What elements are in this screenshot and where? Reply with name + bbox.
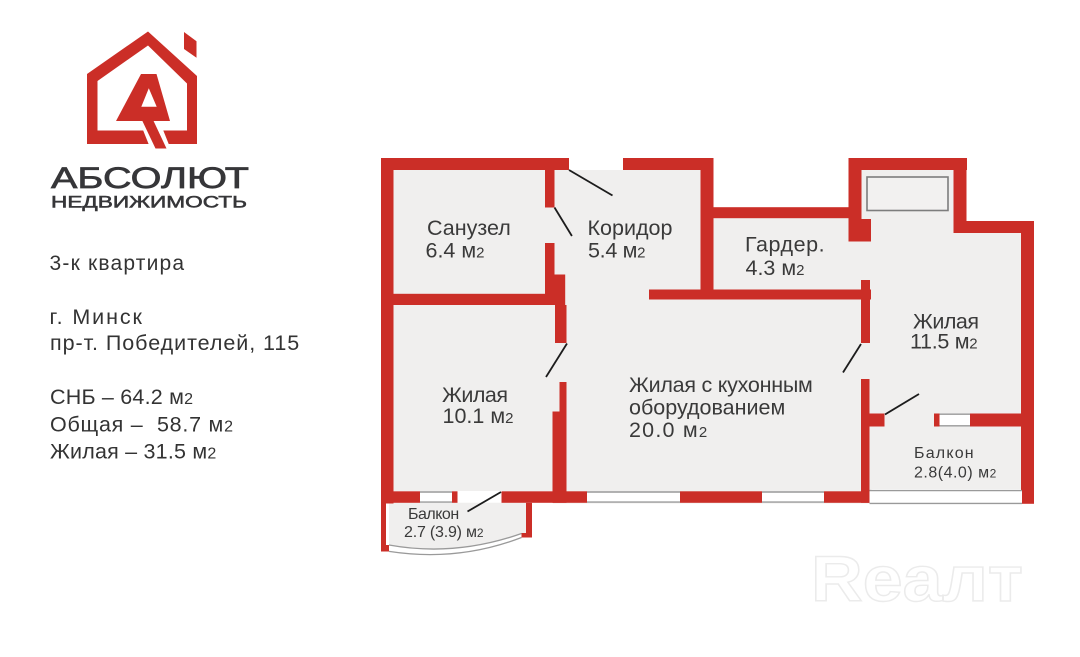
svg-text:СНБ – 64.2 м2: СНБ – 64.2 м2 (50, 385, 193, 409)
svg-text:6.4 м2: 6.4 м2 (426, 239, 485, 263)
svg-text:Коридор: Коридор (588, 216, 673, 240)
svg-text:пр-т. Победителей, 115: пр-т. Победителей, 115 (50, 331, 300, 355)
svg-text:3-к квартира: 3-к квартира (50, 252, 186, 275)
svg-text:Санузел: Санузел (427, 216, 511, 240)
svg-text:г. Минск: г. Минск (50, 305, 144, 329)
svg-text:20.0 м2: 20.0 м2 (629, 418, 708, 442)
svg-text:2.7 (3.9) м2: 2.7 (3.9) м2 (404, 524, 484, 541)
svg-text:11.5 м2: 11.5 м2 (910, 330, 977, 354)
svg-text:АБСОЛЮТ: АБСОЛЮТ (51, 162, 249, 195)
svg-text:оборудованием: оборудованием (629, 396, 785, 420)
svg-text:2.8(4.0) м2: 2.8(4.0) м2 (914, 465, 997, 482)
svg-text:НЕДВИЖИМОСТЬ: НЕДВИЖИМОСТЬ (51, 193, 247, 212)
svg-text:Балкон: Балкон (914, 445, 975, 462)
svg-text:Жилая с кухонным: Жилая с кухонным (629, 373, 813, 397)
svg-text:10.1 м2: 10.1 м2 (443, 404, 514, 428)
svg-text:Reaлт: Reaлт (811, 543, 1023, 615)
svg-text:Гардер.: Гардер. (745, 233, 825, 257)
svg-text:Балкон: Балкон (408, 506, 459, 523)
svg-text:5.4 м2: 5.4 м2 (588, 239, 645, 263)
svg-text:Жилая – 31.5 м2: Жилая – 31.5 м2 (50, 440, 216, 464)
svg-text:4.3 м2: 4.3 м2 (746, 256, 805, 280)
svg-text:Общая – 58.7 м2: Общая – 58.7 м2 (50, 413, 234, 437)
